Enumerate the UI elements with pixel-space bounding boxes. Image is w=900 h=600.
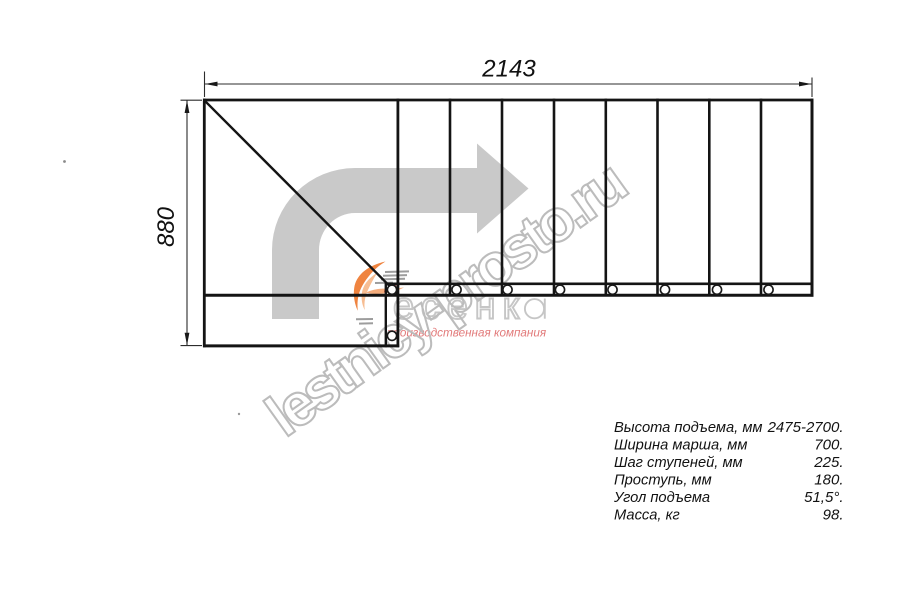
svg-text:180.: 180.	[814, 472, 843, 489]
svg-text:Проступь, мм: Проступь, мм	[614, 473, 712, 489]
svg-text:225.: 225.	[813, 454, 843, 471]
svg-text:Угол подъема: Угол подъема	[613, 490, 710, 506]
svg-text:Масса, кг: Масса, кг	[614, 508, 680, 524]
svg-text:2475-2700.: 2475-2700.	[767, 419, 844, 436]
svg-text:Ширина марша, мм: Ширина марша, мм	[614, 438, 747, 454]
svg-text:98.: 98.	[823, 507, 844, 524]
svg-text:2143: 2143	[481, 56, 536, 83]
svg-text:880: 880	[153, 206, 180, 247]
svg-text:Высота подъема, мм: Высота подъема, мм	[614, 420, 762, 436]
svg-text:Шаг ступеней, мм: Шаг ступеней, мм	[614, 455, 743, 471]
svg-text:51,5°.: 51,5°.	[804, 489, 843, 506]
svg-text:700.: 700.	[814, 437, 843, 454]
